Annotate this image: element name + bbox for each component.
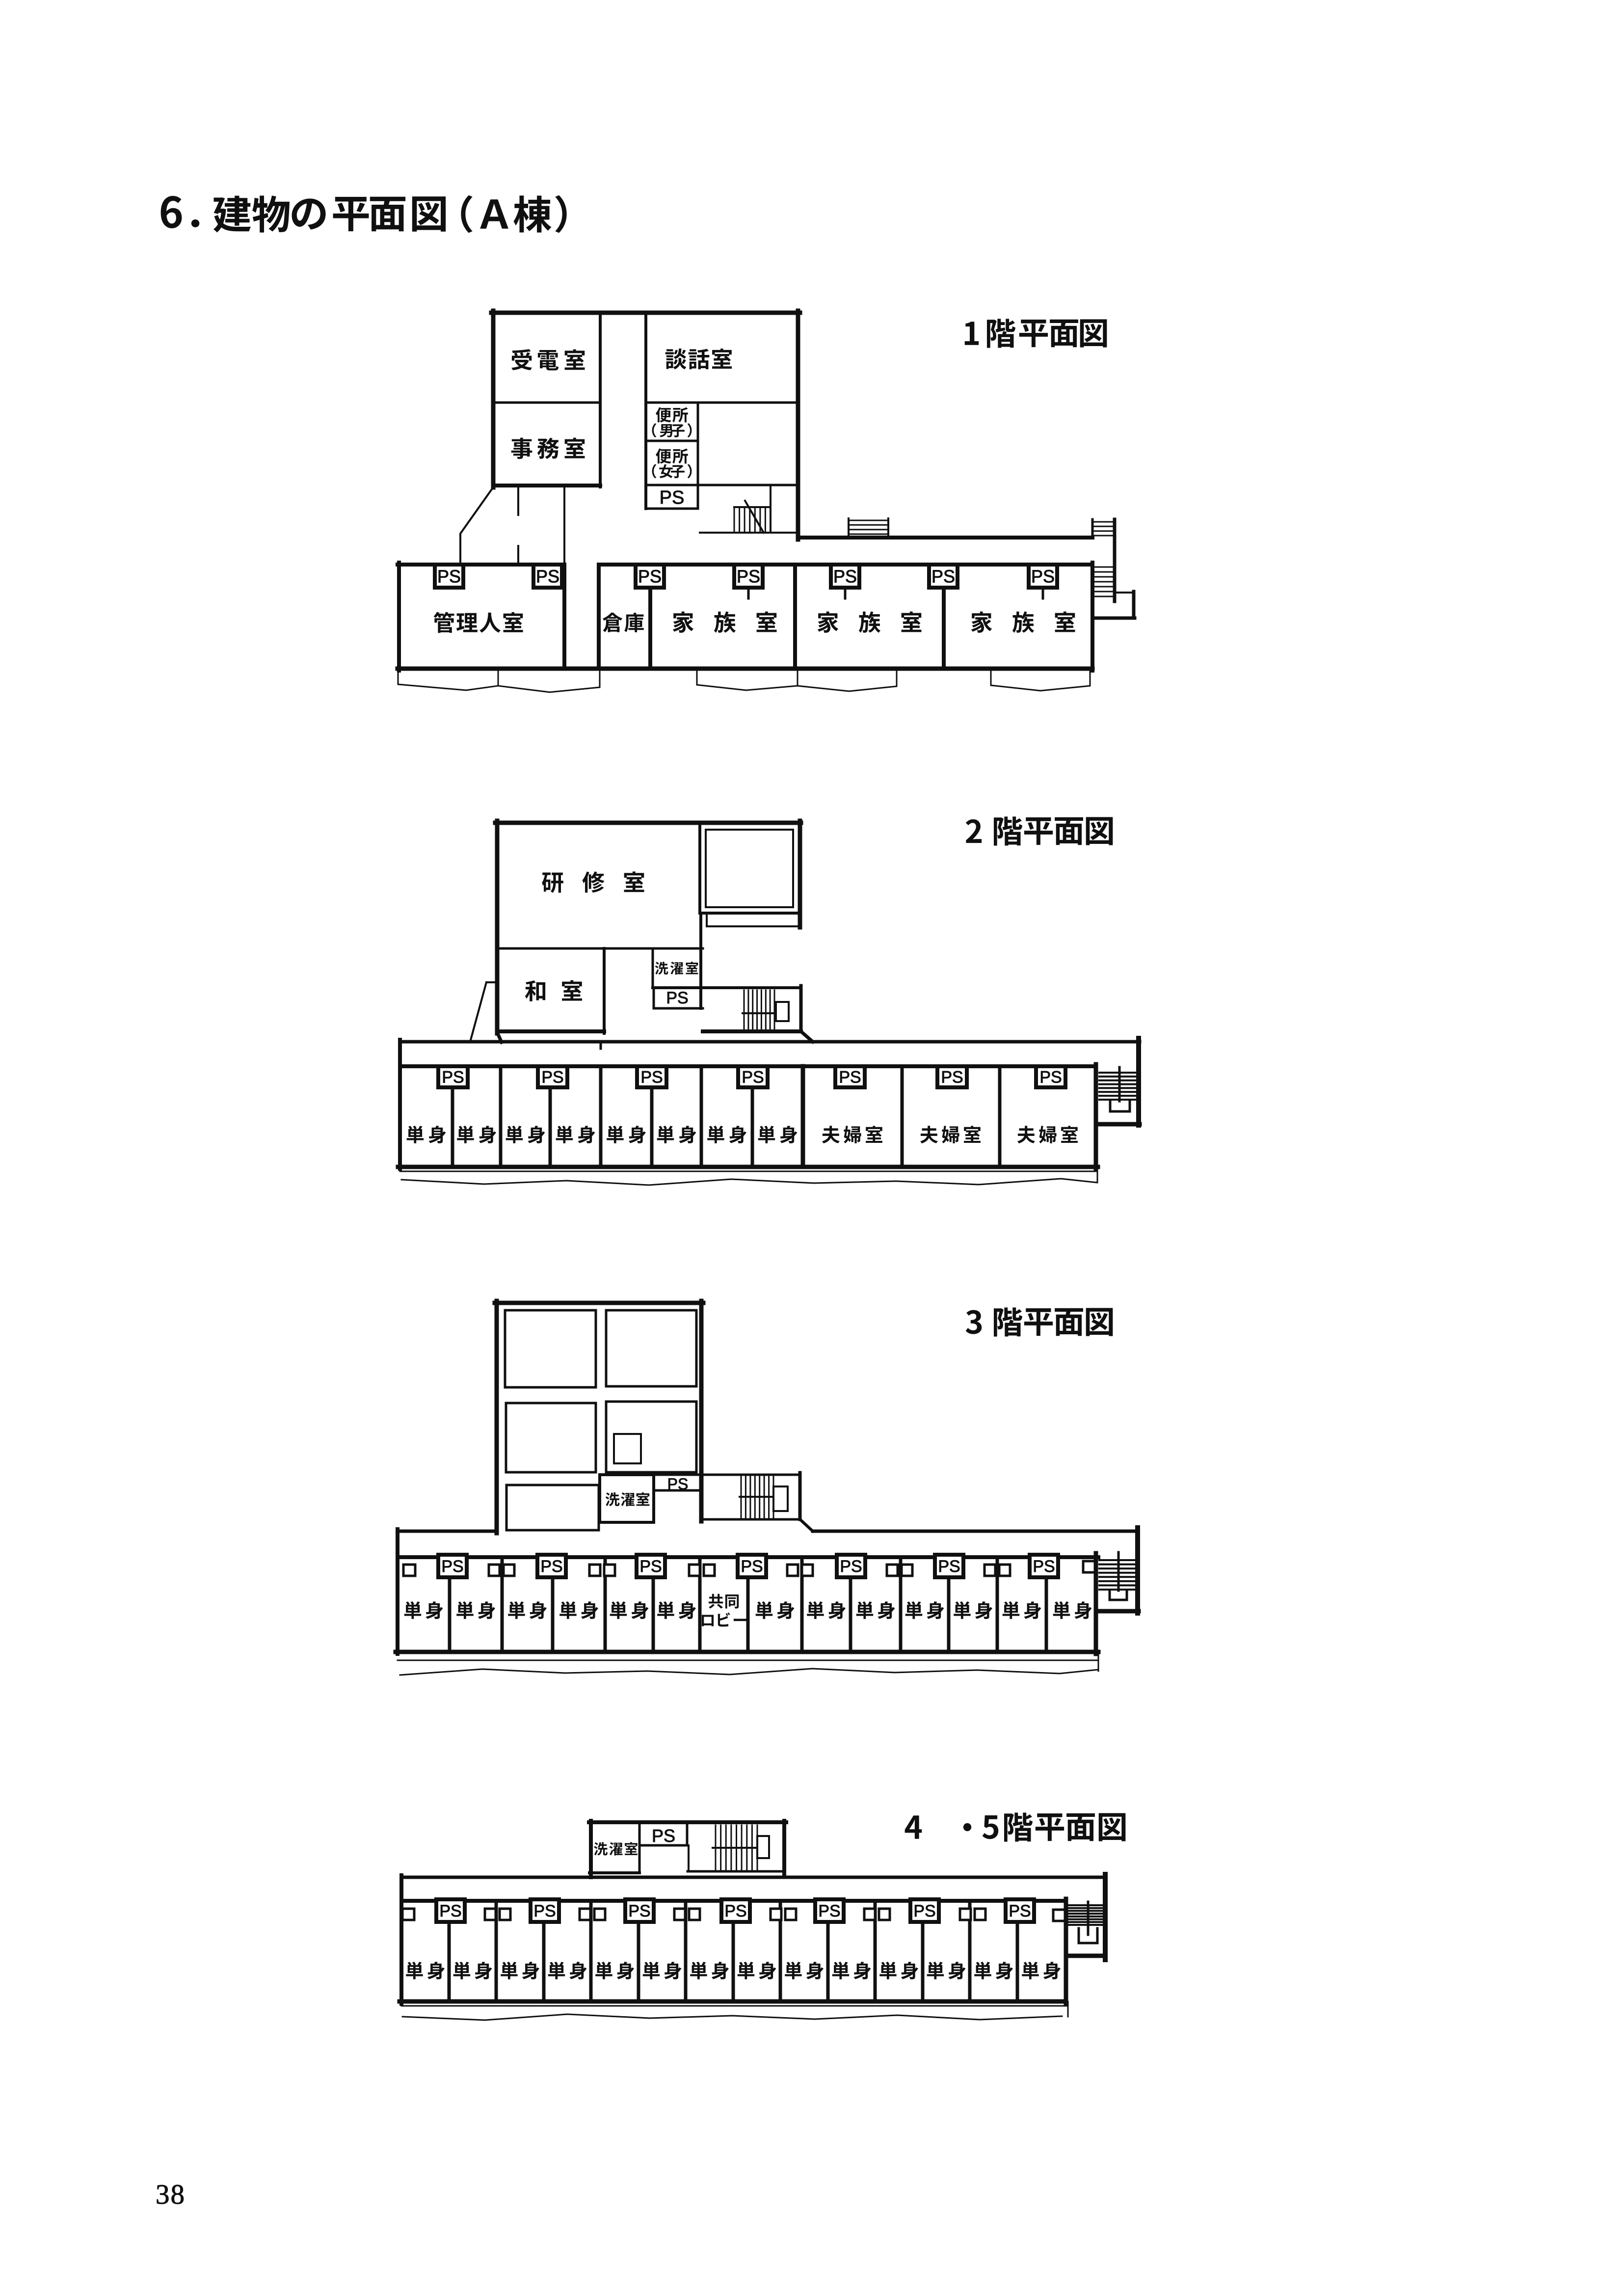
svg-text:PS: PS [666,989,688,1007]
svg-text:PS: PS [439,1902,461,1920]
svg-text:PS: PS [536,566,559,586]
svg-text:PS: PS [1033,1557,1055,1576]
svg-text:PS: PS [938,1557,960,1576]
svg-text:PS: PS [931,566,955,586]
svg-text:PS: PS [839,1068,861,1087]
svg-text:PS: PS [437,566,461,586]
svg-text:PS: PS [541,1068,563,1087]
svg-text:PS: PS [640,1068,663,1087]
svg-text:PS: PS [442,1068,464,1087]
svg-text:PS: PS [941,1068,963,1087]
svg-text:PS: PS [652,1826,675,1846]
svg-text:PS: PS [540,1557,562,1576]
svg-text:PS: PS [833,566,857,586]
svg-text:PS: PS [742,1068,764,1087]
svg-text:PS: PS [638,566,662,586]
svg-text:PS: PS [667,1475,689,1493]
svg-text:PS: PS [737,566,760,586]
svg-text:PS: PS [1039,1068,1062,1087]
svg-text:38: 38 [156,2179,186,2210]
svg-text:PS: PS [628,1902,650,1920]
svg-text:PS: PS [441,1557,463,1576]
svg-text:PS: PS [660,487,685,508]
svg-text:PS: PS [1031,566,1055,586]
svg-text:PS: PS [533,1902,556,1920]
svg-text:PS: PS [639,1557,662,1576]
svg-text:PS: PS [840,1557,862,1576]
svg-text:PS: PS [818,1902,840,1920]
svg-text:PS: PS [741,1557,763,1576]
svg-text:PS: PS [1009,1902,1031,1920]
svg-text:PS: PS [724,1902,746,1920]
svg-text:PS: PS [913,1902,935,1920]
